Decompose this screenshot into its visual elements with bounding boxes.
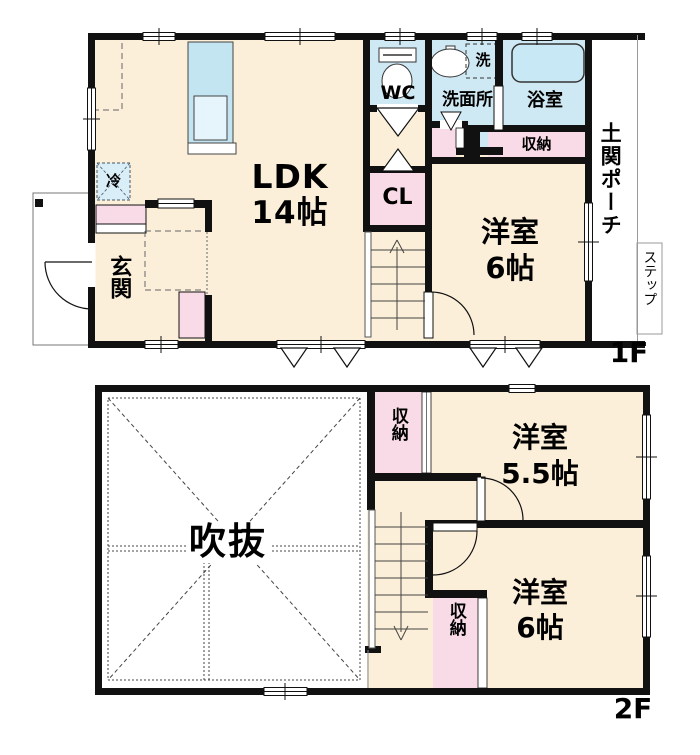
ldk-name: LDK [230, 158, 350, 195]
entrance-cabinet [179, 292, 205, 338]
storage-top-2f-label: 収納 [388, 407, 407, 441]
washroom-label: 洗面所 [430, 91, 505, 110]
step-label: ステップ [641, 250, 656, 306]
ldk-size: 14帖 [230, 195, 350, 232]
room6-door-leaf [424, 292, 433, 338]
void-label: 吹抜 [186, 522, 270, 563]
room55-label: 洋室 5.5帖 [480, 420, 600, 492]
bathtub-icon [512, 44, 584, 82]
room6-2f-door-leaf [433, 523, 477, 531]
storage-top-sliding-door [422, 392, 431, 473]
washer-label: 洗 [471, 52, 495, 69]
shoe-cabinet [96, 205, 146, 224]
bath-storage-label: 収納 [488, 136, 585, 153]
floor-plan-drawing [0, 0, 700, 755]
floor2-label: 2F [607, 694, 659, 725]
room55-size: 5.5帖 [480, 456, 600, 492]
room6-1f-size: 6帖 [455, 250, 565, 286]
kitchen-counter-icon [188, 42, 236, 154]
bath-label: 浴室 [508, 91, 582, 111]
shoe-cabinet-shelf [96, 224, 146, 233]
wc-label: WC [373, 83, 423, 104]
entrance-porch-left [33, 193, 92, 345]
fridge-label: 冷 [97, 173, 130, 190]
closet-label: CL [370, 186, 425, 210]
room6-1f-label: 洋室 6帖 [455, 214, 565, 286]
doma-porch-label: 土関ポーチ [598, 122, 621, 237]
pocket-closet [432, 128, 456, 157]
storage-bottom-2f-label: 収納 [446, 602, 465, 636]
ldk-label: LDK 14帖 [230, 158, 350, 232]
porch-marker [35, 199, 43, 207]
room6-2f-size: 6帖 [485, 610, 595, 645]
room6-1f-name: 洋室 [455, 214, 565, 250]
floor-plan: LDK 14帖 WC 洗面所 洗 浴室 収納 CL 冷 玄関 洋室 6帖 土関ポ… [0, 0, 700, 755]
entrance-label: 玄関 [106, 255, 130, 299]
room6-2f-name: 洋室 [485, 575, 595, 610]
entrance-door-opening [88, 243, 96, 287]
room6-2f-label: 洋室 6帖 [485, 575, 595, 645]
pocket-sliding-door [456, 128, 464, 148]
floor1-label: 1F [603, 338, 655, 369]
room55-name: 洋室 [480, 420, 600, 456]
casement-window-triangles [281, 348, 542, 367]
